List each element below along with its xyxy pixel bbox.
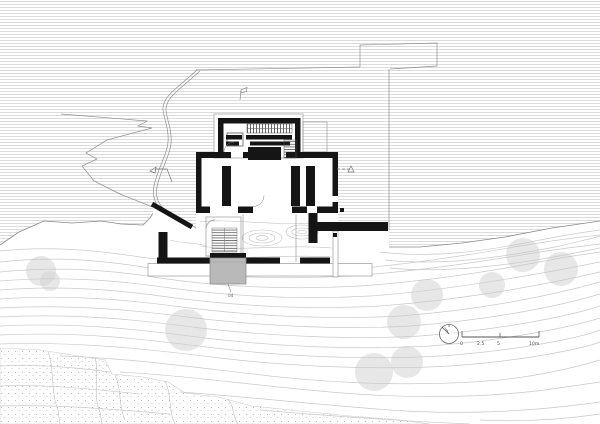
deck-walkway: [148, 264, 372, 277]
main-level-floor: [196, 152, 338, 213]
terrace-stair: [212, 228, 237, 252]
tree: [355, 353, 393, 391]
scale-label-2-5: 2.5: [477, 341, 484, 347]
side-stair: [284, 140, 296, 158]
tree: [387, 305, 421, 339]
scale-label-0: 0: [460, 341, 463, 347]
site-plan-page: 04 0 2.5 5 10m: [0, 0, 600, 424]
tree: [411, 279, 443, 311]
scale-label-10m: 10m: [529, 341, 540, 347]
entry-stair: [247, 124, 292, 133]
north-arrow-icon: [440, 325, 459, 344]
scale-label-5: 5: [497, 341, 500, 347]
site-plan-canvas: 04 0 2.5 5 10m: [0, 0, 600, 424]
tree: [391, 346, 423, 378]
stair-label: 04: [228, 293, 234, 298]
